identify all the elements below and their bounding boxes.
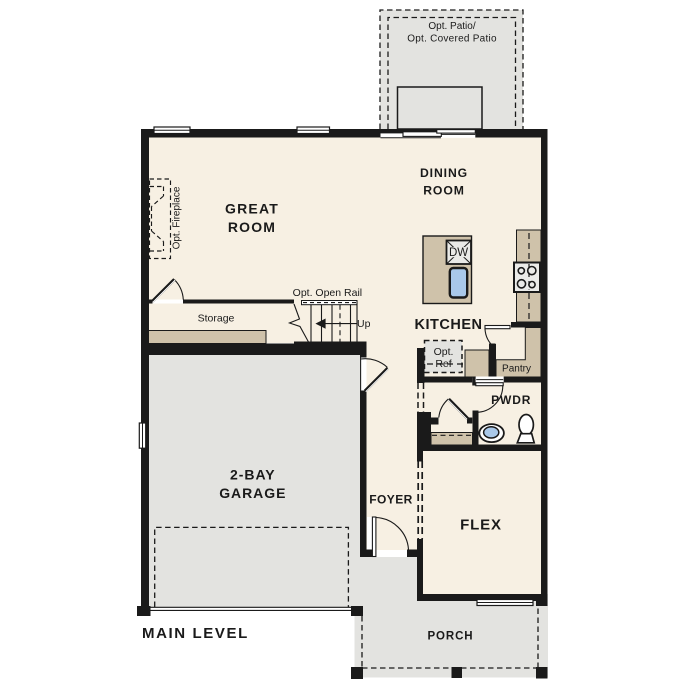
- svg-text:FLEX: FLEX: [460, 517, 502, 534]
- svg-text:FOYER: FOYER: [369, 493, 413, 507]
- svg-text:Opt. Fireplace: Opt. Fireplace: [172, 186, 183, 249]
- svg-text:Pantry: Pantry: [502, 364, 531, 375]
- svg-text:Opt.: Opt.: [434, 346, 454, 358]
- svg-text:Storage: Storage: [198, 313, 235, 325]
- svg-text:ROOM: ROOM: [423, 183, 465, 197]
- svg-text:KITCHEN: KITCHEN: [415, 317, 483, 333]
- svg-text:GARAGE: GARAGE: [219, 485, 286, 501]
- svg-text:Opt. Open Rail: Opt. Open Rail: [293, 287, 362, 299]
- svg-text:Opt. Patio/: Opt. Patio/: [428, 21, 475, 32]
- svg-text:GREAT: GREAT: [225, 200, 279, 216]
- svg-text:PORCH: PORCH: [427, 631, 473, 643]
- svg-text:ROOM: ROOM: [228, 219, 276, 235]
- svg-text:Opt. Covered Patio: Opt. Covered Patio: [407, 34, 497, 45]
- svg-text:MAIN LEVEL: MAIN LEVEL: [142, 625, 249, 642]
- svg-text:PWDR: PWDR: [491, 393, 531, 407]
- svg-text:DW: DW: [449, 247, 468, 259]
- svg-text:Up: Up: [357, 318, 371, 330]
- svg-text:DINING: DINING: [420, 166, 468, 180]
- svg-text:2-BAY: 2-BAY: [230, 467, 275, 483]
